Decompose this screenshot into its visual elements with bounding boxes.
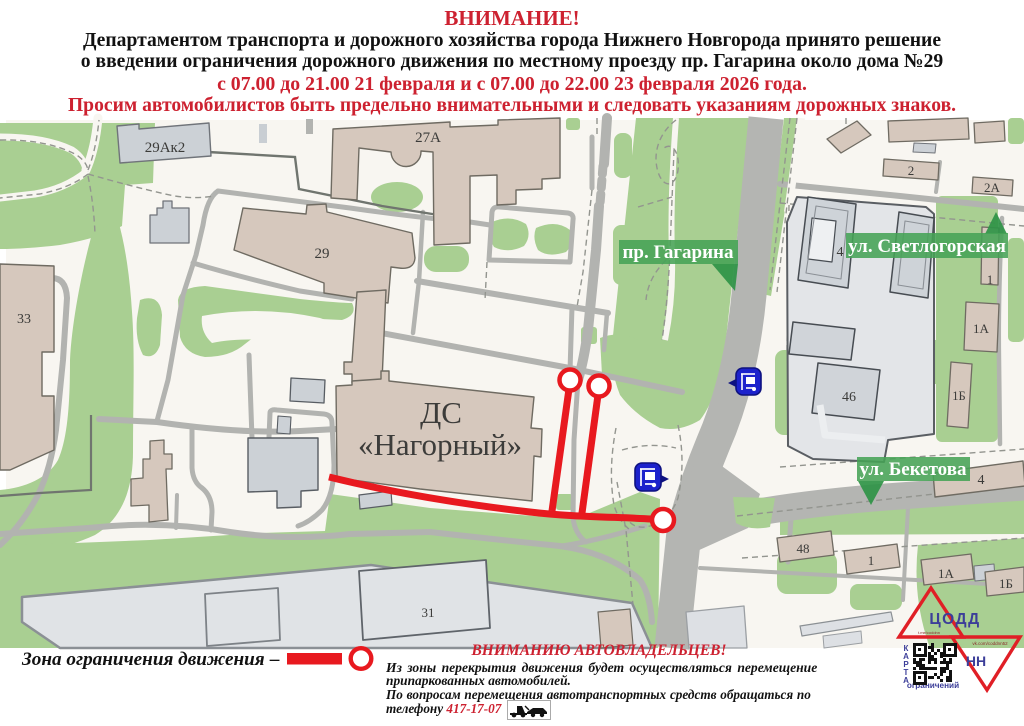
svg-text:33: 33 [17, 312, 31, 327]
svg-text:1: 1 [868, 553, 875, 568]
svg-text:1: 1 [987, 272, 994, 287]
svg-text:«Нагорный»: «Нагорный» [358, 427, 522, 462]
svg-text:2: 2 [908, 163, 915, 178]
svg-text:29Ак2: 29Ак2 [145, 140, 186, 156]
svg-text:t.me/coddnn: t.me/coddnn [918, 630, 940, 635]
svg-text:29: 29 [315, 246, 330, 262]
svg-text:1А: 1А [938, 566, 955, 581]
svg-text:ул. Светлогорская: ул. Светлогорская [848, 236, 1006, 257]
svg-text:48: 48 [797, 541, 810, 556]
svg-text:ул. Бекетова: ул. Бекетова [860, 459, 967, 480]
svg-text:31: 31 [422, 605, 435, 620]
svg-text:НН: НН [966, 653, 986, 669]
svg-text:4: 4 [978, 473, 985, 488]
svg-text:ДС: ДС [420, 395, 462, 430]
svg-text:46: 46 [842, 390, 856, 405]
svg-text:1А: 1А [973, 321, 990, 336]
svg-text:1Б: 1Б [999, 576, 1013, 591]
svg-text:ЦОДД: ЦОДД [929, 611, 980, 628]
svg-text:27А: 27А [415, 130, 441, 146]
svg-text:vk.com/coddnn52: vk.com/coddnn52 [972, 641, 1008, 646]
svg-text:4: 4 [837, 245, 844, 260]
svg-text:1Б: 1Б [952, 389, 965, 403]
svg-text:2А: 2А [984, 180, 1001, 195]
svg-text:пр. Гагарина: пр. Гагарина [622, 242, 734, 263]
